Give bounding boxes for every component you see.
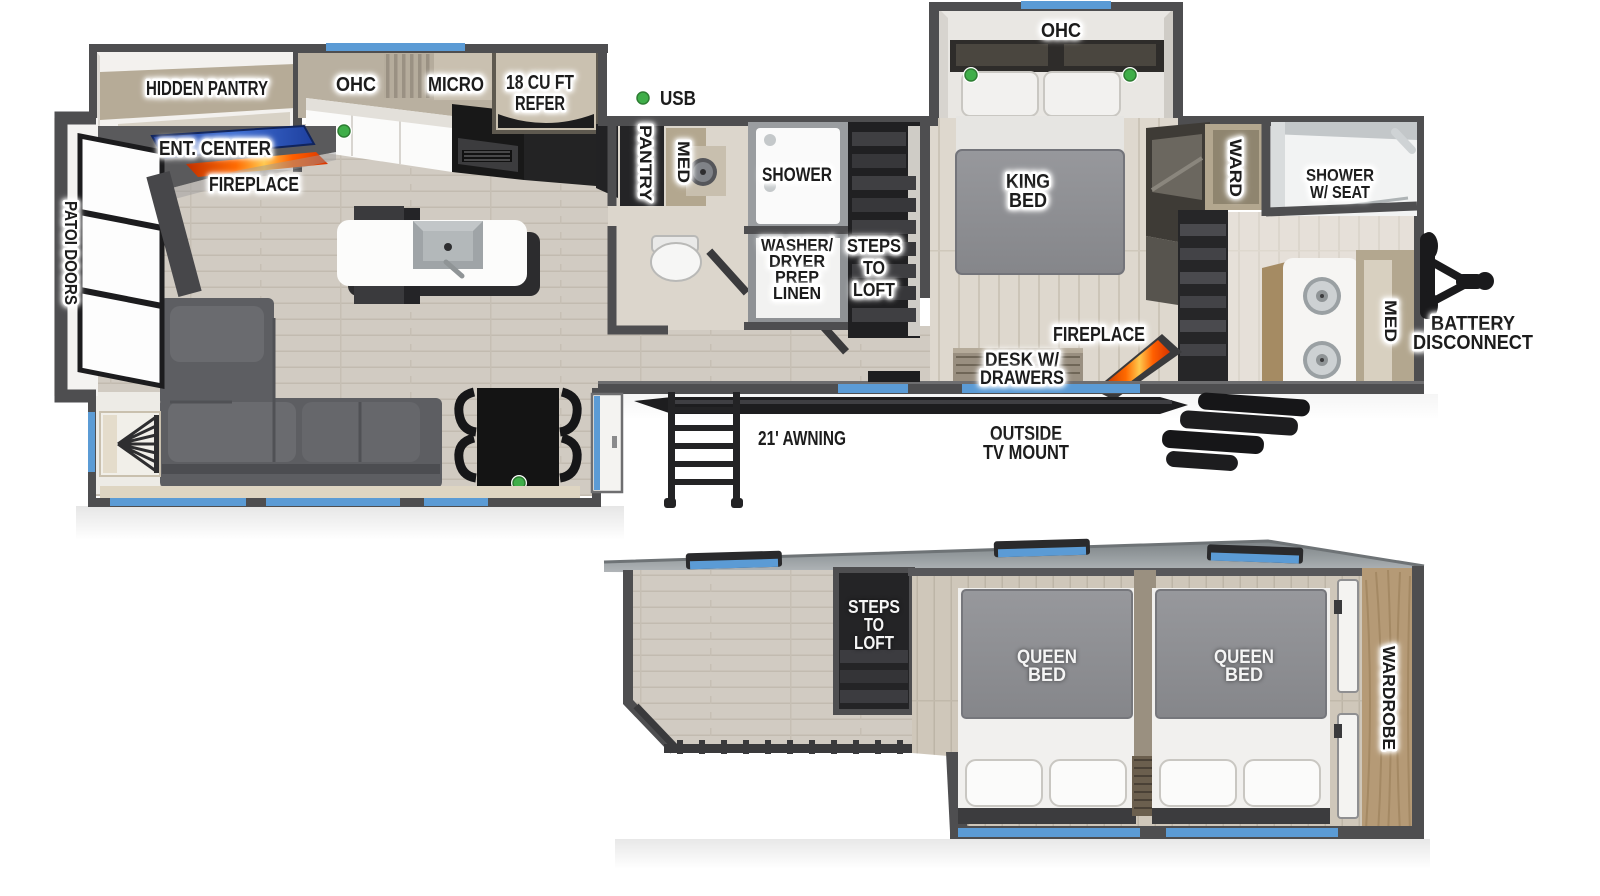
svg-text:BED: BED [1225, 665, 1263, 686]
svg-text:TO: TO [864, 615, 884, 635]
svg-text:PATOI DOORS: PATOI DOORS [61, 201, 81, 305]
svg-text:BED: BED [1028, 665, 1066, 686]
svg-text:WARD: WARD [1226, 139, 1245, 197]
svg-text:STEPS: STEPS [848, 597, 900, 617]
svg-text:LOFT: LOFT [853, 279, 896, 300]
svg-text:DISCONNECT: DISCONNECT [1413, 332, 1533, 354]
svg-text:USB: USB [660, 88, 696, 110]
svg-text:FIREPLACE: FIREPLACE [209, 174, 299, 196]
svg-text:WARDROBE: WARDROBE [1379, 646, 1399, 750]
svg-text:HIDDEN PANTRY: HIDDEN PANTRY [146, 77, 268, 100]
svg-text:TV MOUNT: TV MOUNT [983, 442, 1069, 464]
svg-text:FIREPLACE: FIREPLACE [1053, 324, 1145, 346]
svg-text:MICRO: MICRO [428, 74, 484, 96]
svg-text:MED: MED [1381, 300, 1400, 342]
svg-text:BED: BED [1009, 190, 1047, 212]
svg-text:REFER: REFER [515, 93, 565, 115]
svg-text:ENT. CENTER: ENT. CENTER [159, 138, 271, 160]
svg-text:PANTRY: PANTRY [636, 125, 655, 202]
svg-text:MED: MED [674, 141, 693, 183]
svg-text:OHC: OHC [336, 74, 376, 96]
svg-text:W/ SEAT: W/ SEAT [1310, 182, 1370, 202]
svg-text:18 CU FT: 18 CU FT [506, 72, 574, 94]
svg-text:21' AWNING: 21' AWNING [758, 428, 846, 450]
svg-text:LINEN: LINEN [773, 283, 821, 303]
svg-text:LOFT: LOFT [854, 633, 894, 653]
svg-text:OHC: OHC [1041, 20, 1081, 42]
svg-text:TO: TO [863, 257, 885, 278]
svg-text:SHOWER: SHOWER [762, 165, 832, 186]
svg-text:DRAWERS: DRAWERS [980, 368, 1064, 389]
svg-text:STEPS: STEPS [847, 235, 901, 256]
